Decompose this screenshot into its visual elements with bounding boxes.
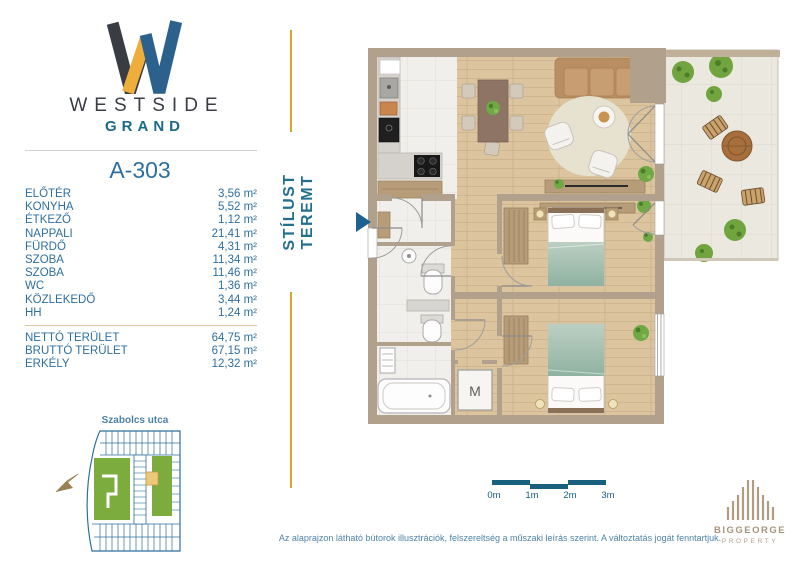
- brand-divider: [25, 150, 257, 151]
- terrace: [664, 50, 778, 262]
- highlighted-unit: [146, 472, 158, 485]
- room-area: 21,41 m²: [212, 228, 257, 241]
- bathtub-icon: [378, 379, 450, 413]
- oven-icon: [379, 118, 399, 142]
- room-area: 3,56 m²: [218, 188, 257, 201]
- room-area: 4,31 m²: [218, 241, 257, 254]
- terrace-chair-icon: [741, 188, 765, 206]
- room-area: 11,34 m²: [212, 254, 257, 267]
- tagline-vertical: STÍLUST TEREMT: [281, 137, 301, 287]
- washing-machine-icon: M: [458, 370, 492, 410]
- floor-plan: M: [352, 24, 784, 430]
- kitchen-window: [380, 60, 400, 74]
- courtyard-green: [94, 458, 130, 520]
- total-row: ERKÉLY12,32 m²: [25, 358, 257, 371]
- total-name: ERKÉLY: [25, 358, 70, 371]
- lamp-icon: [536, 210, 544, 218]
- scale-bar: 0m 1m 2m 3m: [492, 480, 612, 502]
- wardrobe-icon: [504, 208, 528, 264]
- biggeorge-logo: BIGGEORGE PROPERTY: [704, 473, 796, 551]
- site-map: [52, 428, 187, 555]
- room-area: 3,44 m²: [218, 294, 257, 307]
- gold-divider: [290, 30, 292, 132]
- room-area: 5,52 m²: [218, 201, 257, 214]
- compass-icon: [56, 474, 78, 492]
- room-area-table: ELŐTÉR3,56 m² KONYHA5,52 m² ÉTKEZŐ1,12 m…: [25, 188, 257, 372]
- brand-subname: GRAND: [20, 118, 265, 135]
- total-name: BRUTTÓ TERÜLET: [25, 345, 128, 358]
- window-icon: [655, 314, 664, 376]
- scale-tick-label: 0m: [483, 490, 505, 501]
- side-table-icon: [593, 106, 615, 128]
- cutting-board-icon: [380, 102, 397, 115]
- table-row: FÜRDŐ4,31 m²: [25, 241, 257, 254]
- sofa-icon: [555, 58, 640, 98]
- room-area: 11,46 m²: [212, 267, 257, 280]
- plant-icon: [633, 325, 649, 341]
- table-row: HH1,24 m²: [25, 307, 257, 320]
- room-name: FÜRDŐ: [25, 241, 66, 254]
- table-row: NAPPALI21,41 m²: [25, 228, 257, 241]
- double-bed-icon: [548, 324, 604, 413]
- total-area: 67,15 m²: [212, 345, 257, 358]
- vanity-shelf: [407, 300, 449, 311]
- total-row: BRUTTÓ TERÜLET67,15 m²: [25, 345, 257, 358]
- toilet-icon: [422, 264, 444, 294]
- terrace-table-icon: [722, 131, 752, 161]
- room-name: KÖZLEKEDŐ: [25, 294, 95, 307]
- table-row: SZOBA11,46 m²: [25, 267, 257, 280]
- scale-tick-label: 1m: [521, 490, 543, 501]
- room-area: 1,24 m²: [218, 307, 257, 320]
- room-name: KONYHA: [25, 201, 74, 214]
- entry-shelf-icon: [378, 212, 390, 238]
- developer-name: BIGGEORGE: [714, 525, 786, 536]
- courtyard-green: [152, 456, 172, 516]
- table-row: KÖZLEKEDŐ3,44 m²: [25, 294, 257, 307]
- scale-tick-label: 2m: [559, 490, 581, 501]
- unit-id: A-303: [20, 157, 260, 184]
- floorplan-sheet: WESTSIDE GRAND A-303 ELŐTÉR3,56 m² KONYH…: [0, 0, 800, 565]
- wardrobe-icon: [504, 316, 528, 364]
- scale-tick-label: 3m: [597, 490, 619, 501]
- table-row: KONYHA5,52 m²: [25, 201, 257, 214]
- table-row: WC1,36 m²: [25, 280, 257, 293]
- entry-hall: [378, 212, 390, 238]
- table-row: ELŐTÉR3,56 m²: [25, 188, 257, 201]
- svg-text:M: M: [469, 383, 481, 399]
- brand-name: WESTSIDE: [20, 95, 267, 117]
- biggeorge-building-icon: [728, 480, 773, 520]
- lamp-icon: [608, 210, 616, 218]
- disclaimer-text: Az alaprajzon látható bútorok illusztrác…: [260, 533, 740, 543]
- room-name: SZOBA: [25, 267, 64, 280]
- scale-segment: [492, 480, 530, 485]
- total-area: 12,32 m²: [212, 358, 257, 371]
- toilet-icon: [421, 315, 443, 342]
- room-name: WC: [25, 280, 44, 293]
- total-row: NETTÓ TERÜLET64,75 m²: [25, 332, 257, 345]
- gold-divider: [290, 292, 292, 488]
- room-name: NAPPALI: [25, 228, 73, 241]
- cooktop-icon: [414, 155, 440, 177]
- room-name: ÉTKEZŐ: [25, 214, 71, 227]
- street-label: Szabolcs utca: [55, 415, 215, 426]
- double-bed-icon: [548, 208, 604, 286]
- lamp-icon: [609, 400, 618, 409]
- room-area: 1,12 m²: [218, 214, 257, 227]
- building-footprint: [87, 431, 180, 551]
- room-area: 1,36 m²: [218, 280, 257, 293]
- radiator-icon: [380, 348, 395, 373]
- scale-segment: [530, 484, 568, 489]
- westside-logo-icon: [97, 20, 183, 94]
- room-name: HH: [25, 307, 42, 320]
- developer-subtitle: PROPERTY: [722, 538, 778, 545]
- totals-divider: [25, 325, 257, 326]
- room-name: ELŐTÉR: [25, 188, 71, 201]
- scale-segment: [568, 480, 606, 485]
- table-row: SZOBA11,34 m²: [25, 254, 257, 267]
- total-area: 64,75 m²: [212, 332, 257, 345]
- lamp-icon: [536, 400, 545, 409]
- room-name: SZOBA: [25, 254, 64, 267]
- table-row: ÉTKEZŐ1,12 m²: [25, 214, 257, 227]
- total-name: NETTÓ TERÜLET: [25, 332, 119, 345]
